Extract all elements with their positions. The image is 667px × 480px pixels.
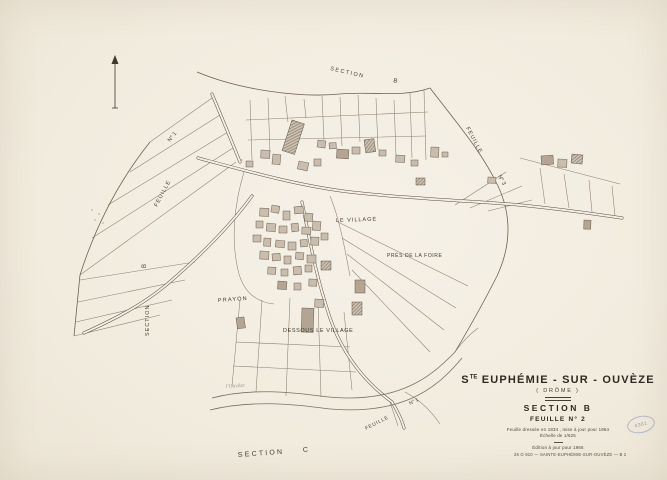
edge-label-left-section: SECTION: [145, 305, 151, 336]
place-label-le-village: LE VILLAGE: [336, 217, 377, 224]
edge-label-right-feuille-number: N° 3: [496, 174, 506, 186]
edge-label-bottom-right-feuille-number: N° 1: [408, 397, 420, 407]
place-labels: LE VILLAGE PRÈS DE LA FOIRE PRAYON DESSO…: [218, 217, 443, 390]
commune-title: STE EUPHÉMIE - SUR - OUVÈZE: [458, 374, 658, 386]
note-divider: [554, 442, 563, 443]
north-arrow-icon: [112, 55, 119, 108]
edge-label-bottom-section: SECTION: [238, 449, 285, 459]
department-label: ( DRÔME ): [458, 388, 658, 394]
section-label: SECTION B: [458, 403, 658, 413]
map-sheet: SECTION B FEUILLE N° 3 FEUILLE N° 1 SECT…: [0, 0, 667, 480]
edge-label-bottom-right-feuille: FEUILLE: [364, 415, 390, 432]
place-label-prayon: PRAYON: [218, 296, 248, 304]
edge-label-top-section: SECTION: [330, 66, 365, 80]
place-label-pres-de-la-foire: PRÈS DE LA FOIRE: [387, 252, 443, 259]
title-block: STE EUPHÉMIE - SUR - OUVÈZE ( DRÔME ) SE…: [458, 374, 658, 450]
title-divider: [545, 397, 571, 401]
river-name-label: l'Ouvèze: [226, 383, 246, 390]
parcel-lines: [74, 72, 620, 426]
village-buildings: [236, 120, 591, 332]
note-edition: Édition à jour pour 1966: [458, 445, 658, 450]
edge-label-left-feuille-number: N° 1: [167, 131, 178, 143]
edge-label-bottom-section-letter: C: [303, 447, 309, 454]
note-scale: Échelle de 1/625: [458, 433, 658, 440]
sheet-reference-line: 26 O 910 — SAINTE-EUPHÉMIE-SUR-OUVÈZE — …: [514, 452, 644, 457]
edge-label-right-feuille: FEUILLE: [464, 126, 483, 155]
edge-label-left-section-letter: B: [142, 264, 148, 268]
stamp-number: 4361: [634, 420, 648, 429]
river-l-ouveze: [210, 352, 462, 410]
place-label-dessous-le-village: DESSOUS LE VILLAGE: [283, 328, 353, 334]
edge-label-top-section-letter: B: [393, 78, 398, 85]
edge-label-left-feuille: FEUILLE: [153, 179, 172, 208]
